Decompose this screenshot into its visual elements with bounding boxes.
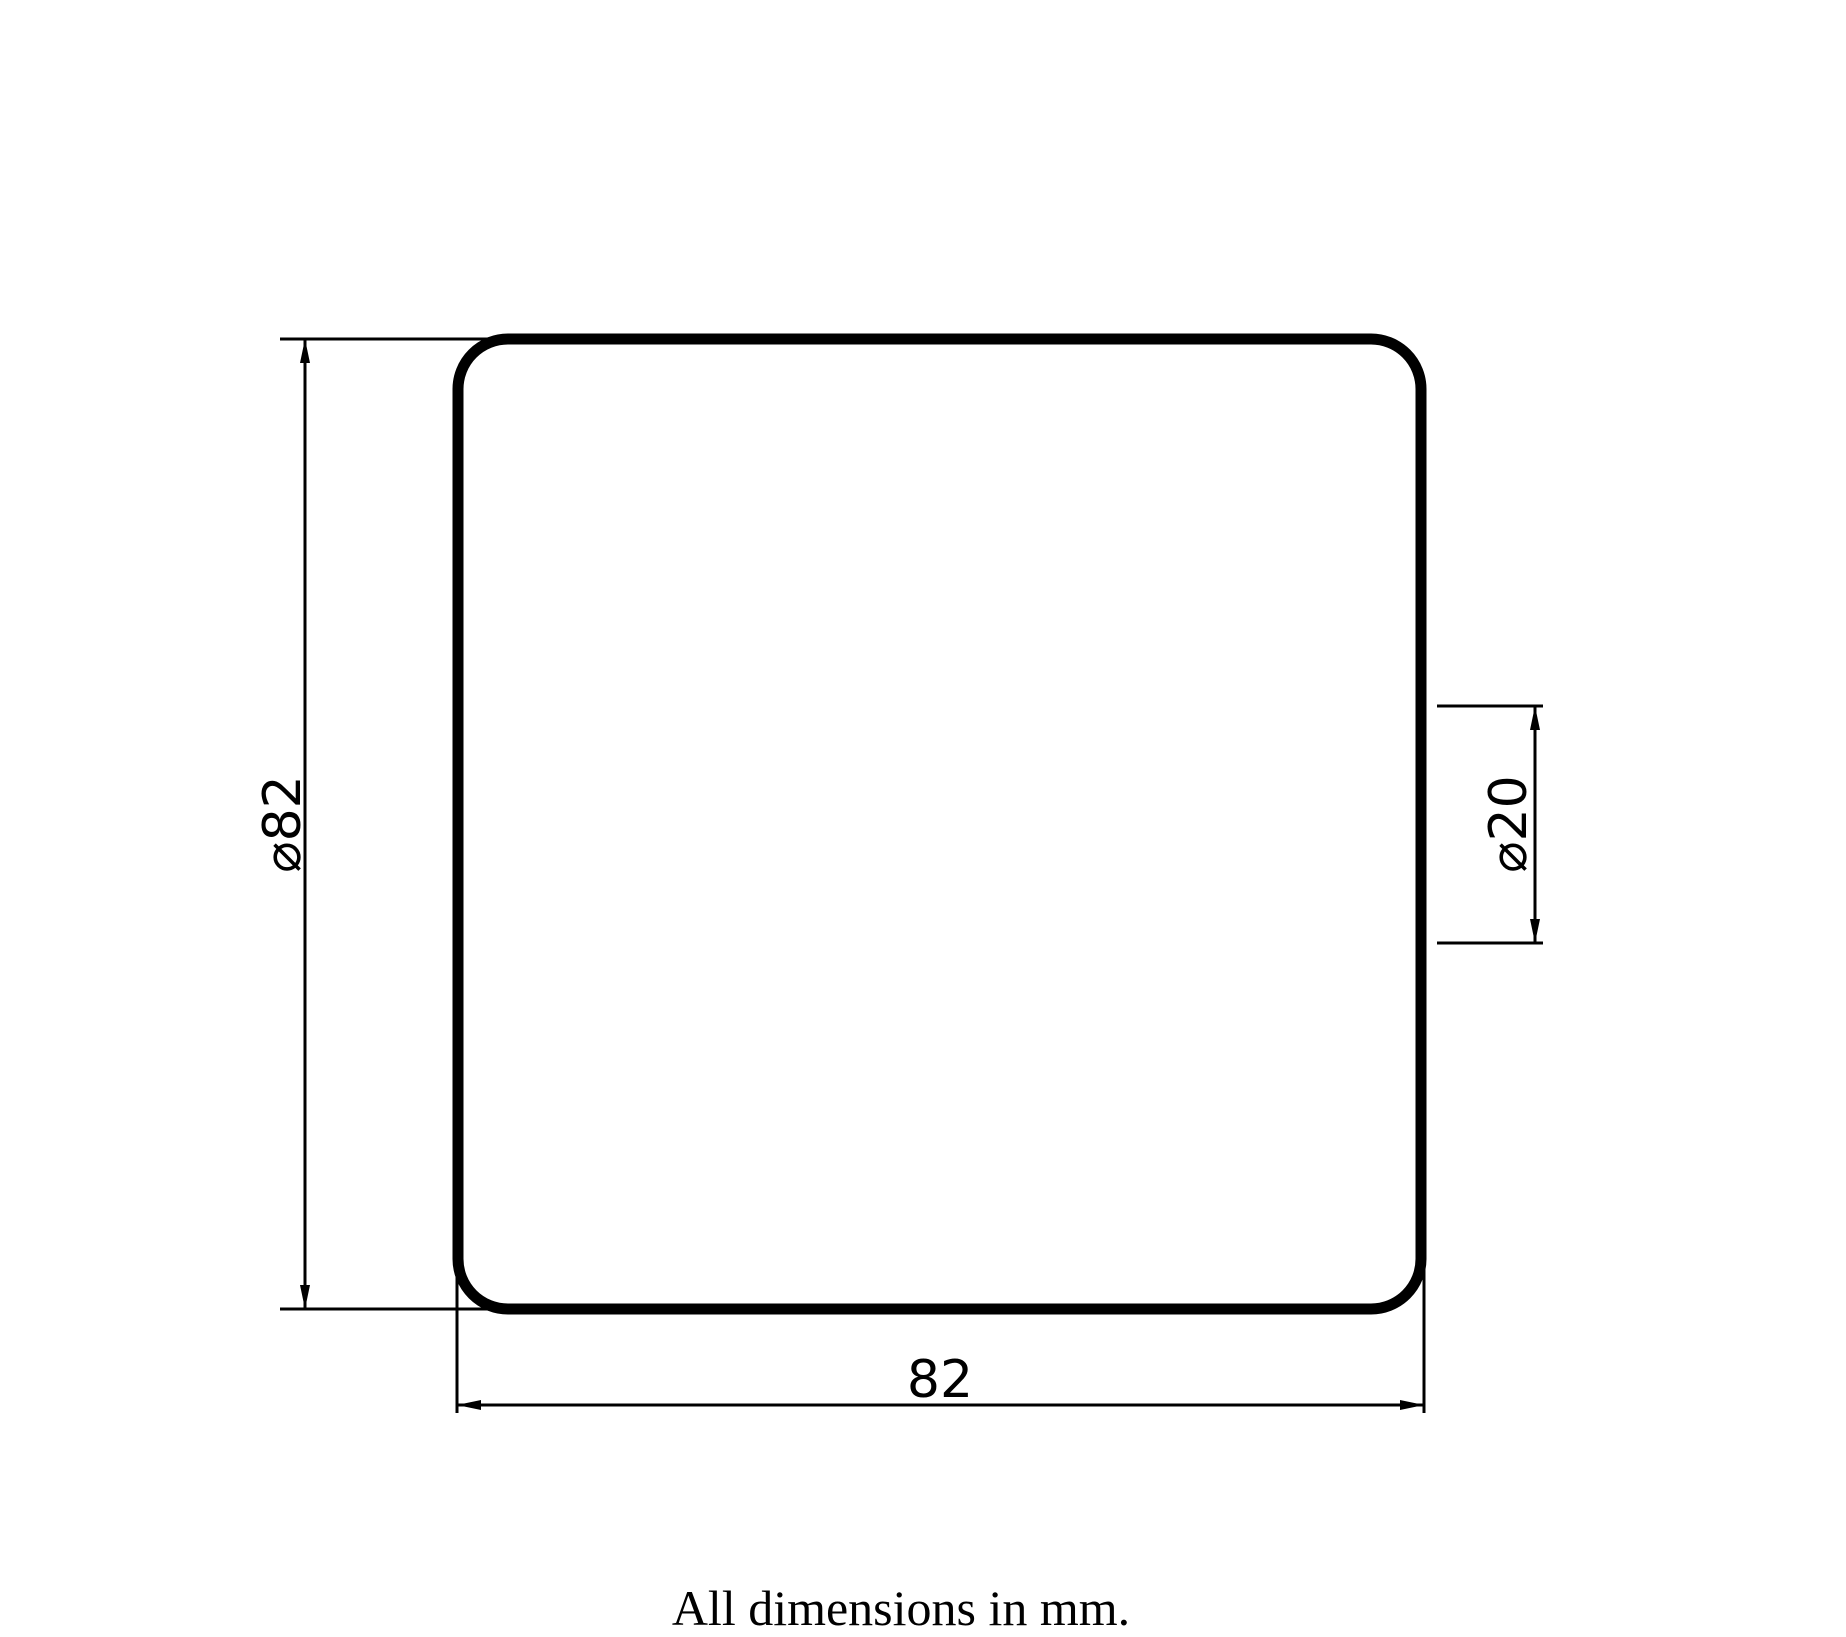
technical-drawing-canvas: ⌀82 ⌀20 82 All dimensions in mm. <box>0 0 1846 1637</box>
arrowhead-up-icon <box>300 339 310 363</box>
dimension-overall-vertical: ⌀82 <box>253 339 560 1309</box>
dimension-label-overall-horizontal: 82 <box>907 1350 973 1410</box>
arrowhead-down-icon <box>1530 919 1540 943</box>
arrowhead-down-icon <box>300 1285 310 1309</box>
arrowhead-up-icon <box>1530 706 1540 730</box>
arrowhead-left-icon <box>457 1400 481 1410</box>
drawing-page: ⌀82 ⌀20 82 All dimensions in mm. <box>0 0 1846 1637</box>
dimension-label-bore: ⌀20 <box>1479 775 1539 872</box>
units-caption: All dimensions in mm. <box>672 1580 1130 1636</box>
dimension-bore-diameter: ⌀20 <box>1437 706 1543 943</box>
dimension-overall-horizontal: 82 <box>457 1245 1424 1413</box>
arrowhead-right-icon <box>1400 1400 1424 1410</box>
dimension-label-overall-vertical: ⌀82 <box>253 775 313 872</box>
part-outline <box>458 339 1421 1309</box>
